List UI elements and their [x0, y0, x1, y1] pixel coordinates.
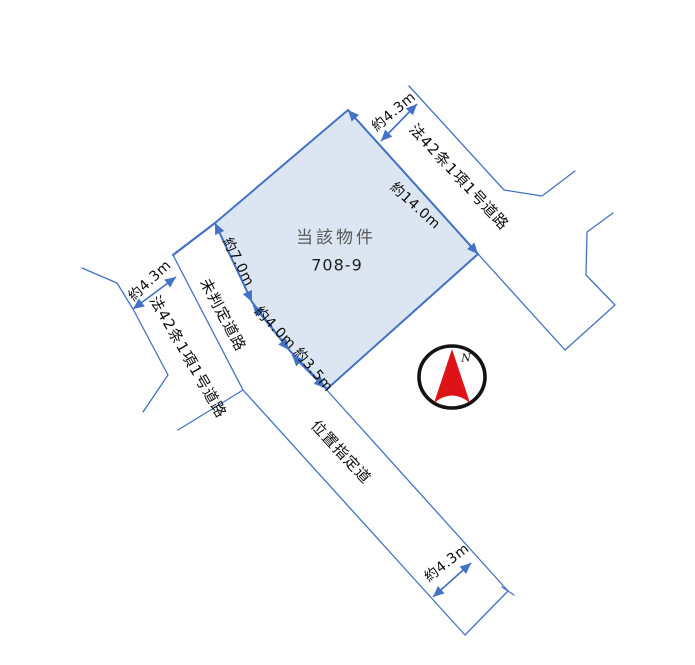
designated-road-label: 位置指定道 — [307, 417, 375, 488]
designated-road-ne-boundary-line — [325, 388, 508, 591]
lot-number-label: 708-9 — [311, 256, 363, 275]
nw-boundary-extension-line — [173, 223, 215, 255]
designated-road-end-line — [465, 591, 508, 635]
east-block-boundary-line — [565, 213, 615, 350]
north-compass-icon: N — [419, 346, 485, 408]
site-plan-diagram: 当該物件 708-9 約14.0m 約7.0m 約4.0m 約3.5m 約4.3… — [0, 0, 695, 665]
site-plan: 当該物件 708-9 約14.0m 約7.0m 約4.0m 約3.5m 約4.3… — [0, 0, 695, 665]
top-road-sw-continuation-line — [478, 254, 565, 350]
road-width-left-label: 約4.3m — [125, 257, 174, 304]
road-width-bottom-label: 約4.3m — [421, 541, 472, 586]
compass-n-label: N — [460, 352, 471, 365]
property-name-label: 当該物件 — [296, 228, 376, 248]
left-road-north-spur-line — [82, 268, 133, 309]
designated-road-sw-boundary-line — [243, 390, 465, 635]
